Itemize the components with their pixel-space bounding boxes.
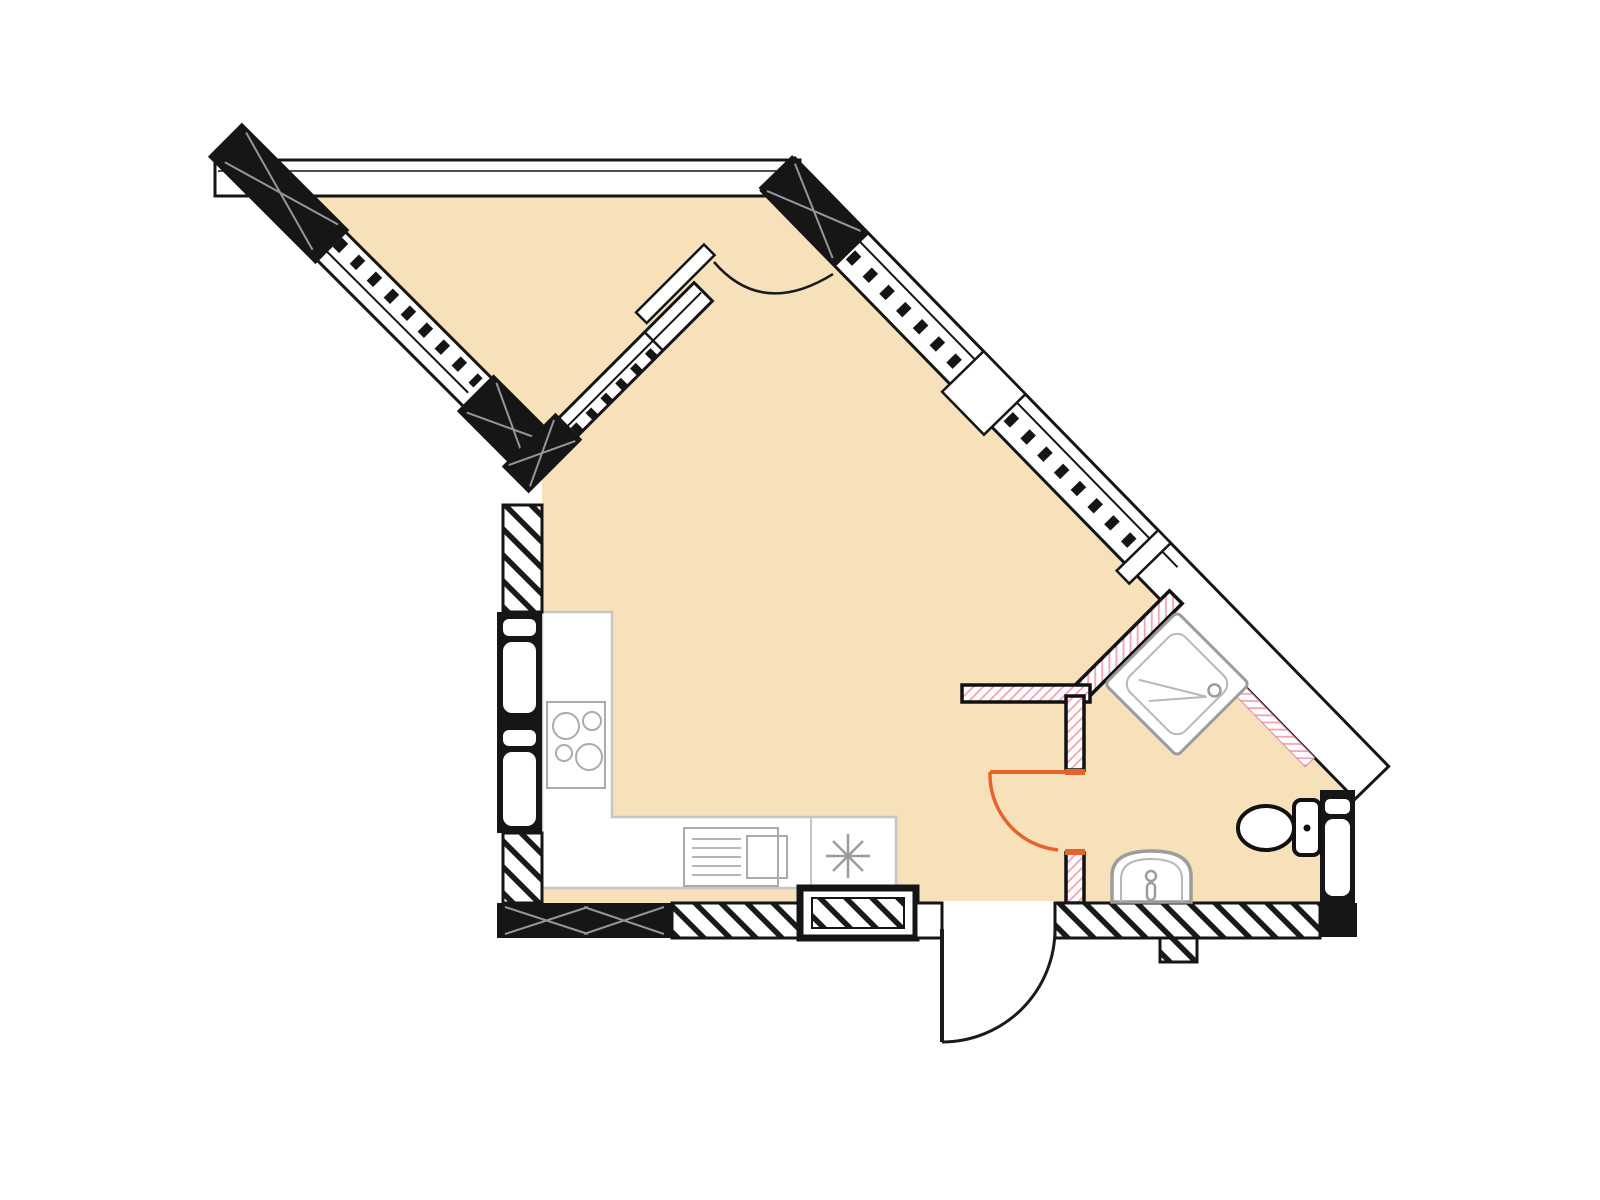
- floor-plan-drawing: [0, 0, 1600, 1200]
- entry-door: [942, 929, 1055, 1042]
- bottom-wall-solid-section: [497, 903, 672, 938]
- washbasin: [1112, 851, 1191, 902]
- bottom-wall-step: [1160, 938, 1197, 962]
- floor-plan-page: [0, 0, 1600, 1200]
- door-jamb-tick-upper: [1065, 769, 1085, 775]
- washbasin-faucet-handle: [1147, 883, 1155, 900]
- right-ventilation-shaft: [1320, 790, 1355, 903]
- built-in-appliance: [684, 828, 787, 886]
- washbasin-faucet: [1146, 871, 1156, 881]
- stove-4-burner: [547, 702, 605, 788]
- bathroom-bottom-wall: [1055, 903, 1320, 938]
- bathroom-vertical-partition-stub: [1066, 853, 1084, 903]
- duct-box: [800, 888, 916, 938]
- bathroom-vertical-partition-upper: [1066, 696, 1084, 770]
- entry-threshold: [938, 901, 1057, 943]
- entry-jamb-left: [916, 903, 942, 938]
- corner-block-bottom-right: [1320, 903, 1357, 937]
- toilet-bowl: [1238, 806, 1294, 850]
- entry-door-swing-arc: [942, 929, 1055, 1042]
- toilet-button: [1304, 825, 1311, 832]
- door-jamb-tick-lower: [1065, 849, 1085, 855]
- left-wall-hatched-lower: [503, 833, 542, 903]
- bottom-wall-hatched-section: [672, 903, 800, 938]
- left-ventilation-shaft: [497, 612, 542, 833]
- left-wall-hatched-upper: [503, 505, 542, 612]
- left-wall: [497, 505, 542, 903]
- toilet: [1238, 800, 1320, 855]
